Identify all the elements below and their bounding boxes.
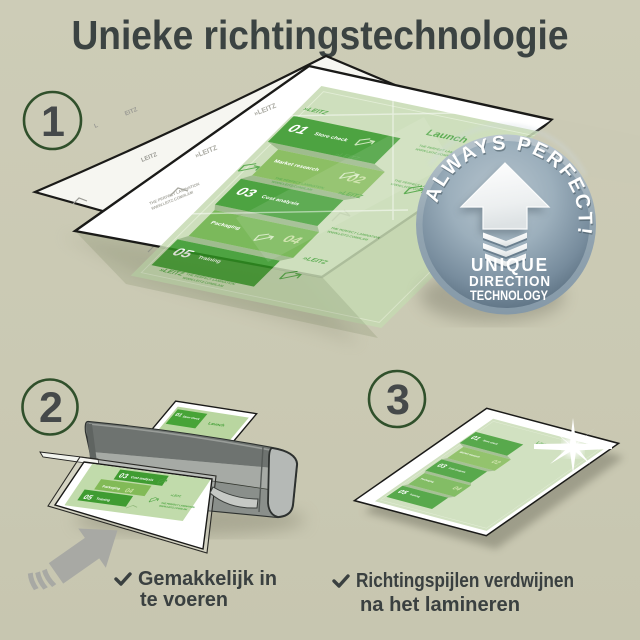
- svg-text:3: 3: [386, 376, 410, 424]
- svg-text:na het lamineren: na het lamineren: [360, 594, 520, 616]
- svg-text:UNIQUE: UNIQUE: [471, 255, 549, 275]
- svg-text:2: 2: [39, 384, 63, 432]
- svg-text:te voeren: te voeren: [140, 589, 228, 611]
- svg-text:Richtingspijlen verdwijnen: Richtingspijlen verdwijnen: [356, 570, 574, 592]
- svg-text:1: 1: [41, 98, 65, 146]
- svg-text:TECHNOLOGY: TECHNOLOGY: [470, 287, 549, 303]
- svg-text:Unieke richtingstechnologie: Unieke richtingstechnologie: [72, 12, 569, 58]
- svg-text:Gemakkelijk in: Gemakkelijk in: [138, 568, 277, 590]
